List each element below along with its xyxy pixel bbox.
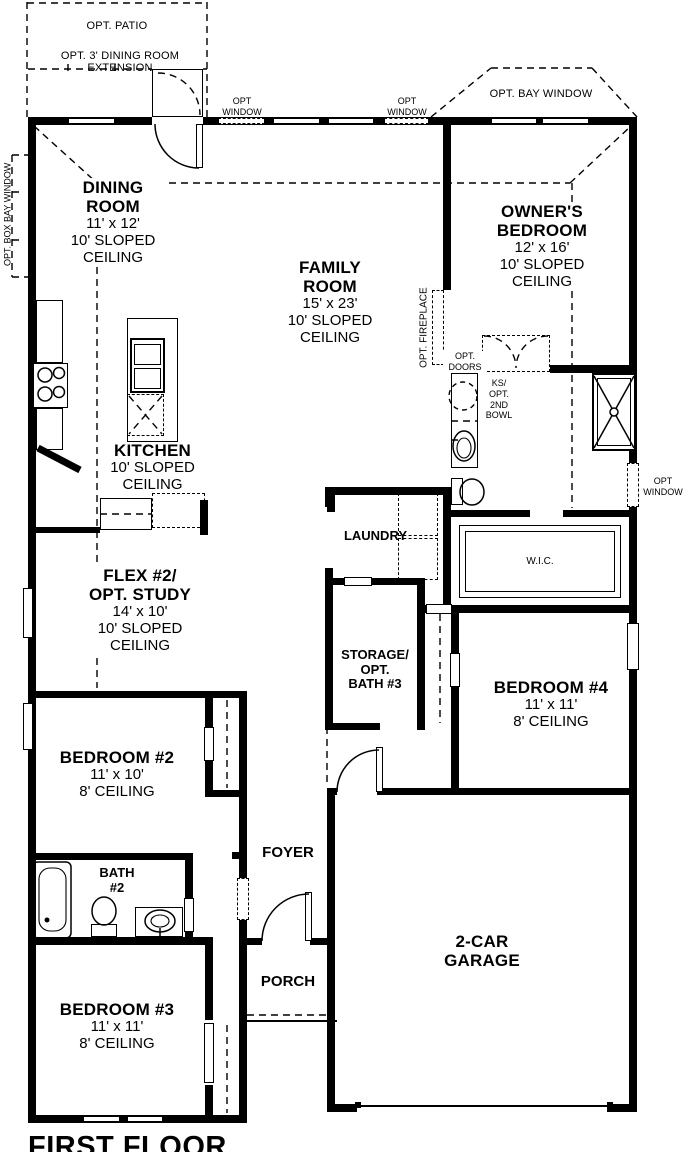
room-ceiling: 10' SLOPED	[84, 621, 196, 638]
room-label-storage: STORAGE/ OPT. BATH #3	[330, 648, 420, 692]
fixture-outline	[135, 907, 183, 937]
optional-window	[384, 118, 429, 124]
wall-segment	[28, 853, 193, 860]
annotation-text: OPT. BAY WINDOW	[486, 88, 596, 100]
wall-segment	[563, 510, 637, 517]
door-frame	[344, 577, 372, 586]
optional-dashed-box	[482, 335, 550, 372]
wall-segment	[443, 510, 530, 517]
door-frame	[184, 898, 194, 932]
opt-box-bay-window-label: OPT. BOX BAY WINDOW	[3, 140, 14, 288]
dining-door-swing-arc	[155, 124, 199, 168]
opt-bay-window-label: OPT. BAY WINDOW	[486, 88, 596, 100]
room-label-laundry: LAUNDRY	[333, 529, 418, 544]
wall-segment	[425, 605, 637, 613]
room-ceiling: 10' SLOPED	[57, 233, 169, 250]
wall-segment	[377, 788, 637, 795]
room-name: STORAGE/	[330, 648, 420, 663]
room-name: BATH #3	[330, 677, 420, 692]
wall-segment	[327, 1104, 357, 1112]
fixture-outline	[91, 924, 117, 937]
room-dims: 11' x 10'	[37, 767, 197, 784]
room-name: ROOM	[255, 277, 405, 296]
annotation-text: OPT	[638, 476, 688, 487]
fixture-outline	[100, 498, 152, 530]
window	[328, 118, 374, 124]
wall-segment	[310, 938, 335, 945]
fixture-outline	[33, 363, 68, 408]
fixture-outline	[597, 378, 631, 446]
floor-plan: DINING ROOM 11' x 12' 10' SLOPED CEILING…	[0, 0, 688, 1152]
door-frame	[426, 604, 452, 614]
tub-drain-icon	[45, 918, 50, 923]
room-label-foyer: FOYER	[258, 845, 318, 862]
door-frame	[204, 1023, 214, 1083]
annotation-text: OPT.	[480, 389, 518, 400]
room-name: DINING	[57, 178, 169, 197]
room-ceiling: 8' CEILING	[466, 714, 636, 731]
garage-door-swing-arc	[337, 750, 379, 792]
window	[542, 118, 589, 124]
room-label-garage: 2-CAR GARAGE	[432, 932, 532, 970]
opt-window-label-3: OPT WINDOW	[638, 476, 688, 498]
annotation-text: BOWL	[480, 410, 518, 421]
optional-dashed-box	[152, 493, 205, 528]
door-frame	[204, 727, 214, 761]
wall-segment	[28, 527, 100, 533]
tub-icon	[33, 862, 71, 938]
wall-segment	[185, 860, 193, 900]
window	[127, 1116, 163, 1122]
opt-patio-label: OPT. PATIO	[72, 20, 162, 32]
room-name: BATH	[92, 866, 142, 881]
room-label-bedroom2: BEDROOM #2 11' x 10' 8' CEILING	[37, 748, 197, 801]
annotation-text: OPT	[219, 96, 265, 107]
owner-toilet-icon	[460, 479, 484, 505]
room-label-dining: DINING ROOM 11' x 12' 10' SLOPED CEILING	[57, 178, 169, 266]
room-ceiling: CEILING	[57, 250, 169, 267]
room-ceiling: CEILING	[255, 330, 405, 347]
room-label-bedroom4: BEDROOM #4 11' x 11' 8' CEILING	[466, 678, 636, 731]
opt-second-bowl-label: KS/ OPT. 2ND BOWL	[480, 378, 518, 421]
room-name: FOYER	[258, 845, 318, 862]
optional-dashed-box	[127, 394, 164, 436]
door-frame	[450, 653, 460, 687]
door-frame	[196, 124, 203, 168]
room-dims: 11' x 12'	[57, 216, 169, 233]
room-ceiling: 8' CEILING	[37, 1036, 197, 1053]
room-ceiling: CEILING	[105, 477, 200, 494]
room-name: FLEX #2/	[84, 566, 196, 585]
window	[491, 118, 537, 124]
annotation-text: WINDOW	[384, 107, 430, 118]
wall-segment	[239, 1020, 337, 1022]
window	[83, 1116, 120, 1122]
wall-segment	[451, 613, 459, 655]
room-name: LAUNDRY	[333, 529, 418, 544]
wall-segment	[327, 795, 335, 1112]
wall-segment	[205, 1085, 213, 1115]
room-label-porch: PORCH	[258, 974, 318, 991]
annotation-text: WINDOW	[638, 487, 688, 498]
wall-segment	[629, 117, 637, 1112]
room-dims: 11' x 11'	[466, 697, 636, 714]
room-label-wic: W.I.C.	[515, 556, 565, 567]
room-label-flex: FLEX #2/ OPT. STUDY 14' x 10' 10' SLOPED…	[84, 566, 196, 654]
wall-segment	[28, 937, 213, 945]
fixture-outline	[451, 478, 463, 505]
annotation-text: DOORS	[443, 362, 487, 373]
wall-segment	[327, 788, 337, 795]
room-ceiling: CEILING	[488, 274, 596, 291]
annotation-text: KS/	[480, 378, 518, 389]
floor-title: FIRST FLOOR	[28, 1131, 288, 1152]
annotation-text: 2ND	[480, 400, 518, 411]
opt-doors-label: OPT. DOORS	[443, 351, 487, 373]
fixture-outline	[451, 373, 478, 468]
annotation-text: OPT. BOX BAY WINDOW	[3, 140, 14, 288]
room-name: BEDROOM #3	[37, 1000, 197, 1019]
room-dims: 11' x 11'	[37, 1019, 197, 1036]
room-ceiling: 10' SLOPED	[255, 313, 405, 330]
room-label-bedroom3: BEDROOM #3 11' x 11' 8' CEILING	[37, 1000, 197, 1053]
window	[23, 703, 33, 750]
wall-segment	[205, 698, 213, 728]
room-name: 2-CAR	[432, 932, 532, 951]
door-frame	[305, 892, 312, 941]
room-dims: 12' x 16'	[488, 240, 596, 257]
room-label-owner: OWNER'S BEDROOM 12' x 16' 10' SLOPED CEI…	[488, 202, 596, 290]
floor-title-text: FIRST FLOOR	[28, 1131, 288, 1152]
room-name: PORCH	[258, 974, 318, 991]
room-name: W.I.C.	[515, 556, 565, 567]
fixture-outline	[36, 300, 63, 363]
front-door-swing-arc	[262, 894, 309, 941]
room-name: OWNER'S	[488, 202, 596, 221]
room-name: BEDROOM #4	[466, 678, 636, 697]
opt-dining-extension-label: OPT. 3' DINING ROOM EXTENSION	[30, 50, 210, 75]
room-name: BEDROOM #2	[37, 748, 197, 767]
room-name: ROOM	[57, 197, 169, 216]
room-name: #2	[92, 881, 142, 896]
room-label-kitchen: KITCHEN 10' SLOPED CEILING	[105, 441, 200, 494]
wall-segment	[325, 723, 380, 730]
window	[68, 118, 115, 124]
annotation-text: OPT.	[443, 351, 487, 362]
wall-segment	[357, 1105, 609, 1107]
bath2-toilet-icon	[92, 897, 116, 925]
opt-window-label-2: OPT WINDOW	[384, 96, 430, 118]
pantry-corner-wall	[38, 448, 80, 470]
room-label-family: FAMILY ROOM 15' x 23' 10' SLOPED CEILING	[255, 258, 405, 346]
wall-segment	[355, 1102, 361, 1108]
fixture-outline	[36, 408, 63, 450]
room-label-bath2: BATH #2	[92, 866, 142, 895]
room-dims: 14' x 10'	[84, 604, 196, 621]
annotation-text: OPT. 3' DINING ROOM EXTENSION	[30, 50, 210, 75]
room-name: GARAGE	[432, 951, 532, 970]
annotation-text: OPT. FIREPLACE	[418, 274, 429, 382]
opt-window-label-1: OPT WINDOW	[219, 96, 265, 118]
opt-box-bay-window-outline	[12, 155, 28, 277]
window	[627, 623, 639, 670]
fixture-outline	[134, 368, 161, 389]
wall-segment	[443, 124, 451, 290]
window	[273, 118, 320, 124]
tub-inner-line	[39, 868, 66, 931]
wall-segment	[550, 365, 637, 373]
room-dims: 15' x 23'	[255, 296, 405, 313]
wall-segment	[232, 852, 240, 859]
wall-segment	[607, 1102, 613, 1108]
optional-window	[237, 878, 249, 920]
annotation-text: WINDOW	[219, 107, 265, 118]
wall-segment	[239, 938, 262, 945]
optional-window	[218, 118, 265, 124]
room-name: KITCHEN	[105, 441, 200, 460]
wall-segment	[205, 945, 213, 1020]
room-name: OPT. STUDY	[84, 585, 196, 604]
wall-segment	[325, 487, 333, 507]
room-name: OPT.	[330, 663, 420, 678]
room-ceiling: 8' CEILING	[37, 784, 197, 801]
room-ceiling: CEILING	[84, 638, 196, 655]
fixture-outline	[134, 344, 161, 365]
wall-segment	[239, 698, 247, 878]
room-name: FAMILY	[255, 258, 405, 277]
room-name: BEDROOM	[488, 221, 596, 240]
optional-dashed-box	[398, 538, 438, 580]
room-ceiling: 10' SLOPED	[105, 460, 200, 477]
door-frame	[376, 747, 383, 792]
wall-segment	[451, 687, 459, 788]
opt-fireplace-label: OPT. FIREPLACE	[418, 274, 429, 382]
wall-segment	[28, 691, 247, 698]
door-frame	[152, 69, 203, 117]
annotation-text: OPT	[384, 96, 430, 107]
window	[23, 588, 33, 638]
room-ceiling: 10' SLOPED	[488, 257, 596, 274]
annotation-text: OPT. PATIO	[72, 20, 162, 32]
